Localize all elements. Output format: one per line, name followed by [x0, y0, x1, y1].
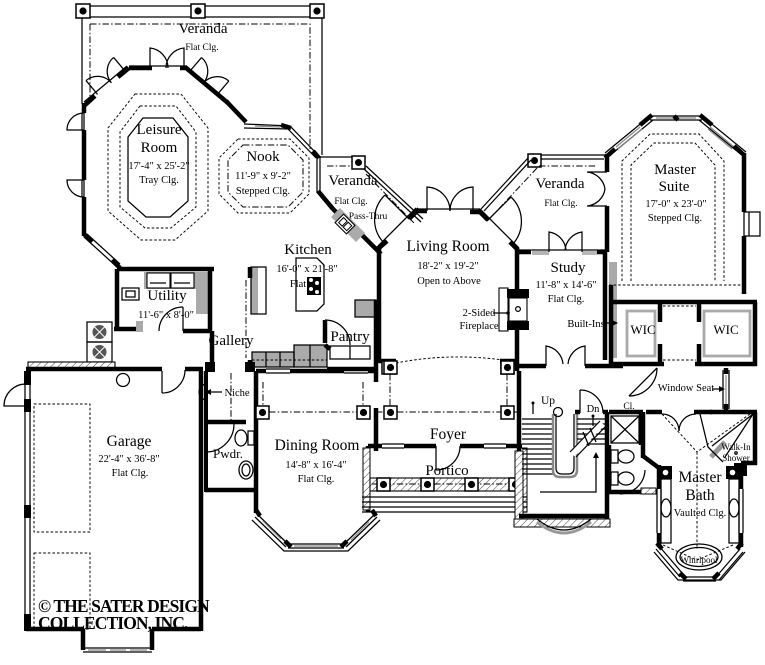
svg-text:Flat Clg.: Flat Clg.	[112, 468, 149, 479]
svg-text:Leisure: Leisure	[137, 122, 182, 138]
svg-text:Room: Room	[141, 140, 178, 156]
svg-text:Portico: Portico	[425, 463, 468, 479]
svg-text:Foyer: Foyer	[430, 426, 467, 443]
svg-text:Stepped Clg.: Stepped Clg.	[648, 213, 702, 224]
svg-text:18'-2" x 19'-2": 18'-2" x 19'-2"	[417, 261, 478, 272]
svg-text:Flat Clg.: Flat Clg.	[298, 474, 335, 485]
svg-text:Veranda: Veranda	[535, 176, 584, 192]
svg-text:Dining Room: Dining Room	[275, 437, 360, 454]
svg-text:16'-0" x 21'-8": 16'-0" x 21'-8"	[276, 264, 337, 275]
svg-text:Whirlpool: Whirlpool	[681, 555, 718, 565]
svg-text:WIC: WIC	[630, 322, 655, 337]
svg-text:11'-8" x 14'-6": 11'-8" x 14'-6"	[536, 280, 597, 291]
svg-text:Cl.: Cl.	[623, 402, 634, 412]
svg-text:Garage: Garage	[107, 433, 152, 450]
svg-text:Master: Master	[654, 162, 696, 178]
svg-text:2-Sided: 2-Sided	[463, 308, 496, 319]
svg-text:Study: Study	[550, 260, 586, 276]
svg-text:17'-0" x 23'-0": 17'-0" x 23'-0"	[645, 199, 706, 210]
svg-text:Living Room: Living Room	[406, 238, 489, 255]
svg-text:Gallery: Gallery	[209, 333, 254, 349]
svg-text:Tray Clg.: Tray Clg.	[139, 175, 179, 186]
svg-text:14'-8" x 16'-4": 14'-8" x 16'-4"	[285, 460, 346, 471]
svg-text:Flat Clg.: Flat Clg.	[544, 199, 577, 209]
svg-text:Flat Clg.: Flat Clg.	[185, 43, 218, 53]
svg-text:Bath: Bath	[685, 487, 715, 504]
svg-text:Master: Master	[678, 469, 722, 486]
svg-text:Flat Clg.: Flat Clg.	[334, 197, 367, 207]
svg-text:Kitchen: Kitchen	[284, 242, 332, 258]
svg-text:Pass-Thru: Pass-Thru	[349, 212, 388, 222]
svg-text:Walk-In: Walk-In	[721, 442, 751, 452]
svg-text:11'-6" x 8'-0": 11'-6" x 8'-0"	[138, 310, 194, 321]
svg-text:Suite: Suite	[659, 179, 690, 195]
svg-text:Veranda: Veranda	[328, 173, 377, 189]
svg-text:Flat Clg.: Flat Clg.	[548, 294, 585, 305]
svg-text:Veranda: Veranda	[178, 21, 227, 37]
svg-text:Stepped Clg.: Stepped Clg.	[236, 186, 290, 197]
svg-text:Up: Up	[541, 395, 555, 407]
svg-text:Vaulted Clg.: Vaulted Clg.	[674, 508, 727, 519]
svg-text:Open to Above: Open to Above	[417, 276, 481, 287]
svg-text:WIC: WIC	[713, 322, 738, 337]
svg-text:11'-9" x 9'-2": 11'-9" x 9'-2"	[235, 171, 291, 182]
svg-text:Built-Ins: Built-Ins	[567, 319, 604, 330]
svg-text:Nook: Nook	[246, 149, 280, 165]
svg-text:Utility: Utility	[147, 288, 187, 304]
svg-text:Pantry: Pantry	[330, 329, 370, 345]
svg-text:Dn: Dn	[587, 404, 601, 415]
svg-text:17'-4" x 25'-2": 17'-4" x 25'-2"	[128, 161, 189, 172]
svg-text:Pwdr.: Pwdr.	[213, 446, 243, 461]
svg-text:Window Seat: Window Seat	[658, 383, 715, 394]
svg-text:Niche: Niche	[224, 388, 249, 399]
svg-text:COLLECTION, INC.: COLLECTION, INC.	[38, 613, 188, 633]
svg-text:Flat: Flat	[290, 279, 306, 290]
svg-text:Fireplace: Fireplace	[459, 321, 498, 332]
svg-text:22'-4" x 36'-8": 22'-4" x 36'-8"	[98, 454, 159, 465]
